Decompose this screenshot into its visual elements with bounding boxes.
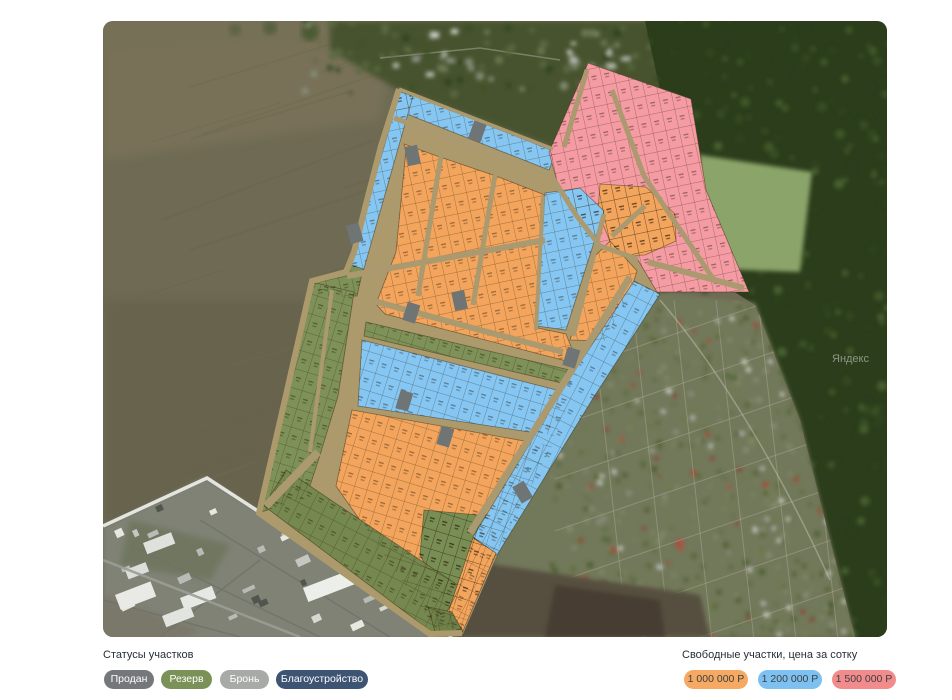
- svg-text:Яндекс: Яндекс: [832, 353, 869, 365]
